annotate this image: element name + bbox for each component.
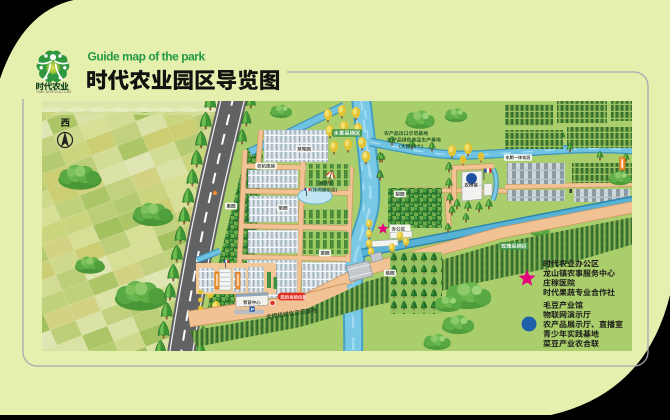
- svg-text:Guide map of the park: Guide map of the park: [88, 50, 206, 64]
- svg-text:TIME AGRICULTURE: TIME AGRICULTURE: [36, 90, 72, 94]
